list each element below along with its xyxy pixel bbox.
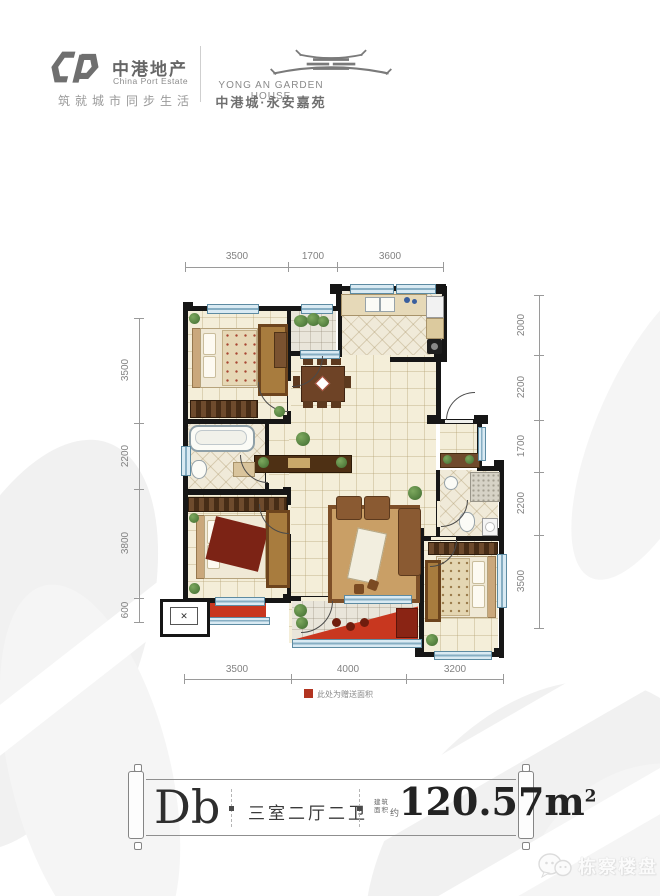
door-opening [288, 381, 291, 411]
header-divider [200, 46, 201, 102]
area-number: 120.57 [399, 779, 544, 824]
bed-blanket [438, 558, 470, 616]
banner-divider-dot [357, 806, 362, 811]
wall-pier [283, 487, 291, 495]
area-label: 建筑 面积 [374, 799, 389, 815]
elevator-symbol: ✕ [170, 607, 198, 625]
dim-tick [534, 355, 544, 356]
legend-text: 此处为赠送面积 [317, 689, 373, 700]
roof-logo-icon [265, 42, 397, 78]
scroll-rod-left [128, 771, 144, 839]
dim-label: 3500 [120, 348, 132, 392]
bathtub-inner [195, 430, 247, 445]
dim-tick [134, 622, 144, 623]
area-approx: 约 [390, 806, 399, 819]
plant [258, 457, 269, 468]
dim-tick [534, 535, 544, 536]
window [396, 284, 436, 294]
dim-tick [534, 420, 544, 421]
unit-type-code: Db [154, 780, 220, 834]
fridge [426, 296, 444, 318]
window [350, 284, 394, 294]
kitchen-cabinet [426, 318, 444, 339]
leaf-shape [536, 252, 660, 602]
dim-tick [134, 423, 144, 424]
stove-burner [431, 343, 438, 350]
dim-tick [443, 262, 444, 272]
window [344, 595, 412, 604]
window [215, 597, 265, 606]
dim-label: 1700 [516, 424, 528, 468]
wall-pier [415, 648, 424, 657]
ottoman [354, 584, 364, 594]
dim-label: 600 [120, 588, 132, 632]
dim-label: 3200 [435, 664, 475, 675]
plant [336, 457, 347, 468]
cp-logo-icon [50, 50, 106, 84]
plant [443, 455, 452, 464]
poster-page: 中港地产 China Port Estate 筑就城市同步生活 YONG AN … [0, 0, 660, 896]
pot [346, 622, 355, 631]
dim-label: 2200 [516, 365, 528, 409]
plant [189, 513, 199, 523]
dining-chair [331, 358, 341, 365]
dim-tick [534, 295, 544, 296]
plant [189, 313, 200, 324]
area-label-line2: 面积 [374, 807, 389, 815]
area-value: 120.57m2 [399, 783, 597, 821]
dim-label: 2200 [120, 434, 132, 478]
pillow [203, 356, 216, 378]
dim-tick [134, 318, 144, 319]
plant [294, 315, 308, 327]
dim-tick [288, 262, 289, 272]
area-sup: 2 [585, 786, 597, 806]
window [206, 617, 270, 625]
project-name-cn: 中港城·永安嘉苑 [202, 92, 340, 111]
plant [189, 583, 200, 594]
plant [408, 486, 422, 500]
window [181, 446, 191, 476]
brand-name-en: China Port Estate [113, 76, 188, 86]
wall-pier [283, 594, 291, 603]
toilet [191, 460, 207, 479]
window [434, 651, 492, 660]
sofa [398, 508, 421, 576]
pot [360, 618, 369, 627]
scroll-rod-knob [522, 842, 530, 850]
watermark: 栋察楼盘 [538, 852, 658, 880]
plant [294, 604, 307, 617]
dim-line-right [539, 295, 540, 628]
door-opening [445, 420, 473, 423]
legend-red-swatch [304, 689, 313, 698]
plant [274, 406, 285, 417]
dim-label: 2000 [516, 303, 528, 347]
door-arc-entry [446, 392, 475, 420]
wall-pier [494, 460, 504, 471]
banner-bottom-line [146, 835, 516, 836]
window [301, 304, 333, 314]
wall-pier [494, 648, 504, 657]
pot [332, 618, 341, 627]
dim-tick [534, 472, 544, 473]
banner-divider-dot [229, 806, 234, 811]
dim-tick [134, 598, 144, 599]
plant [465, 455, 474, 464]
wall [183, 419, 291, 424]
dresser [274, 332, 287, 368]
pillow [203, 333, 216, 355]
wall-pier [427, 415, 441, 424]
kitchen-sink [365, 297, 380, 312]
dim-line-left [139, 318, 140, 622]
wardrobe [190, 400, 258, 418]
watermark-text: 栋察楼盘 [578, 853, 658, 879]
wall-pier [330, 284, 342, 294]
wall-pier [474, 415, 488, 424]
shower [470, 472, 500, 502]
window [497, 554, 507, 608]
dim-line-bottom [184, 679, 504, 680]
bed-blanket [222, 330, 257, 386]
dim-label: 3500 [217, 251, 257, 262]
plant [296, 432, 310, 446]
unit-layout-text: 三室二厅二卫 [248, 799, 368, 824]
dim-label: 1700 [293, 251, 333, 262]
washer-door [485, 522, 495, 532]
dim-tick [185, 262, 186, 272]
armchair [364, 496, 390, 520]
door-opening [437, 501, 440, 527]
area-unit: m [544, 779, 584, 824]
scroll-rod-knob [134, 842, 142, 850]
wall-pier [183, 302, 193, 311]
dim-label: 2200 [516, 481, 528, 525]
dim-tick [406, 674, 407, 684]
sink [444, 476, 458, 490]
dim-label: 3800 [120, 521, 132, 565]
dim-tick [291, 674, 292, 684]
chat-bubbles-icon [538, 852, 572, 880]
wall-pier [283, 415, 291, 424]
dim-label: 3600 [370, 251, 410, 262]
dining-chair [303, 401, 313, 408]
dim-tick [534, 628, 544, 629]
window [478, 427, 486, 461]
plant [426, 634, 438, 646]
plant [296, 617, 308, 629]
pillow [472, 585, 485, 608]
dining-chair [344, 376, 351, 388]
dim-tick [503, 674, 504, 684]
dim-line-top [185, 267, 444, 268]
area-label-line1: 建筑 [374, 799, 389, 807]
dim-tick [184, 674, 185, 684]
kitchen-faucet [412, 299, 417, 304]
dim-label: 3500 [217, 664, 257, 675]
wall [183, 489, 291, 495]
rug [425, 560, 441, 622]
kitchen-faucet [404, 297, 410, 303]
kitchen-sink [380, 297, 395, 312]
plant [318, 316, 329, 327]
dim-tick [337, 262, 338, 272]
balcony-chest [396, 608, 418, 638]
dim-label: 3500 [516, 559, 528, 603]
armchair [336, 496, 362, 520]
dining-chair [317, 401, 327, 408]
window [207, 304, 259, 314]
brand-tagline: 筑就城市同步生活 [58, 92, 194, 109]
tv [288, 458, 310, 468]
dining-chair [331, 401, 341, 408]
pillow [472, 561, 485, 584]
wall [436, 357, 441, 423]
window-balcony [292, 639, 422, 648]
dim-tick [134, 489, 144, 490]
dim-label: 4000 [328, 664, 368, 675]
